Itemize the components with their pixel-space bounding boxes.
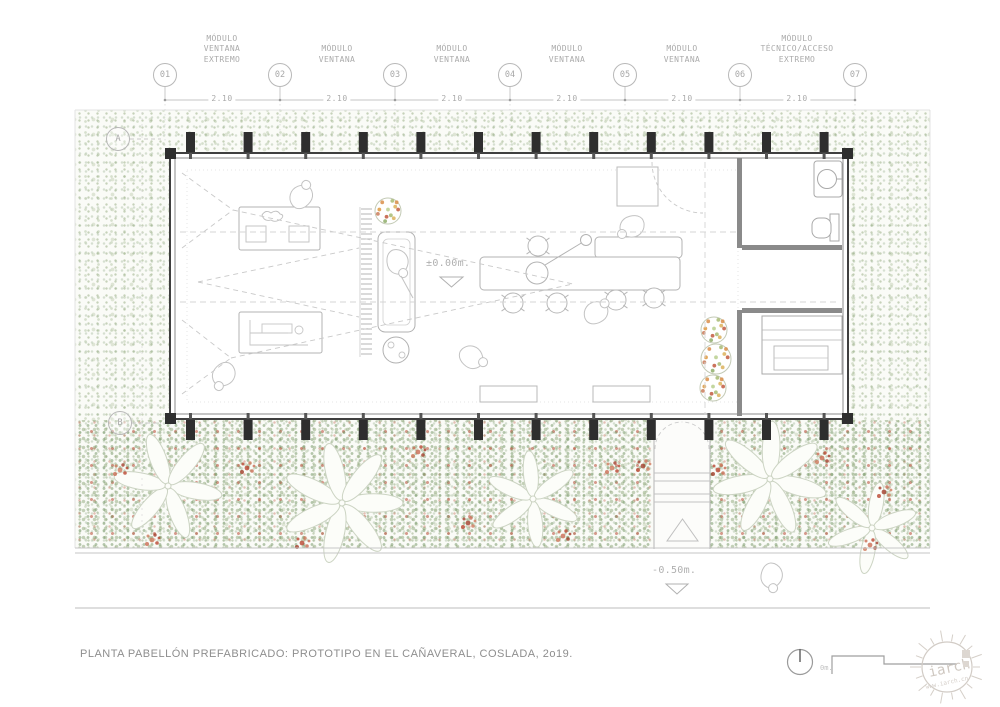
module-label-5: MÓDULO VENTANA bbox=[627, 36, 737, 66]
partition-bathroom-south bbox=[742, 245, 842, 250]
row-bubble-a: A bbox=[106, 127, 130, 151]
corner-se bbox=[842, 413, 853, 424]
level-triangle-exterior bbox=[666, 584, 688, 594]
corner-ne bbox=[842, 148, 853, 159]
dining-table-main bbox=[480, 257, 680, 290]
level-label-interior: ±0.00m. bbox=[426, 258, 470, 269]
grid-bubble-06: 06 bbox=[728, 63, 752, 87]
table-lamp-base bbox=[526, 262, 548, 284]
floor-plan-canvas: iarch www.iarch.cn MÓDULO VENTANA EXTREM… bbox=[0, 0, 1000, 707]
dim-2: 2.10 bbox=[323, 94, 350, 103]
grid-bubble-03: 03 bbox=[383, 63, 407, 87]
plan-linework: iarch www.iarch.cn bbox=[0, 0, 1000, 707]
table-lamp-head bbox=[581, 235, 592, 246]
grid-bubble-07: 07 bbox=[843, 63, 867, 87]
watermark-seal-1 bbox=[962, 650, 970, 658]
bench-1 bbox=[480, 386, 537, 402]
row-grid-dashes bbox=[130, 139, 161, 423]
side-table bbox=[383, 337, 409, 363]
sofa bbox=[378, 232, 415, 332]
grid-bubble-01: 01 bbox=[153, 63, 177, 87]
garden-path bbox=[654, 420, 710, 549]
desk-bottom-left bbox=[239, 312, 322, 353]
module-label-4: MÓDULO VENTANA bbox=[512, 36, 622, 66]
dim-6: 2.10 bbox=[783, 94, 810, 103]
toilet-bowl bbox=[812, 218, 831, 238]
scale-zero-label: 0m. bbox=[820, 664, 833, 672]
partition-vertical-bottom bbox=[737, 310, 742, 416]
drawing-title: PLANTA PABELLÓN PREFABRICADO: PROTOTIPO … bbox=[80, 648, 573, 660]
dim-5: 2.10 bbox=[668, 94, 695, 103]
partition-vertical-top bbox=[737, 158, 742, 248]
white-flower-rosettes bbox=[113, 421, 918, 575]
watermark-seal-2 bbox=[963, 661, 969, 667]
module-label-1: MÓDULO VENTANA EXTREMO bbox=[167, 36, 277, 66]
module-label-2: MÓDULO VENTANA bbox=[282, 36, 392, 66]
dining-table-upper bbox=[595, 237, 682, 258]
corner-sw bbox=[165, 413, 176, 424]
level-label-exterior: -0.50m. bbox=[652, 565, 696, 576]
entry-cabinet bbox=[617, 167, 658, 206]
bench-2 bbox=[593, 386, 650, 402]
dim-4: 2.10 bbox=[553, 94, 580, 103]
grid-bubble-05: 05 bbox=[613, 63, 637, 87]
dim-3: 2.10 bbox=[438, 94, 465, 103]
grid-ticks bbox=[164, 87, 857, 149]
dim-1: 2.10 bbox=[208, 94, 235, 103]
row-bubble-b: B bbox=[108, 411, 132, 435]
module-label-3: MÓDULO VENTANA bbox=[397, 36, 507, 66]
north-symbol bbox=[788, 649, 813, 675]
path-surface bbox=[654, 420, 710, 549]
corner-nw bbox=[165, 148, 176, 159]
grid-bubble-02: 02 bbox=[268, 63, 292, 87]
module-label-6: MÓDULO TÉCNICO/ACCESO EXTREMO bbox=[742, 36, 852, 66]
grid-bubble-04: 04 bbox=[498, 63, 522, 87]
partition-storage-north bbox=[742, 308, 842, 313]
watermark-stamp: iarch www.iarch.cn bbox=[910, 631, 982, 704]
